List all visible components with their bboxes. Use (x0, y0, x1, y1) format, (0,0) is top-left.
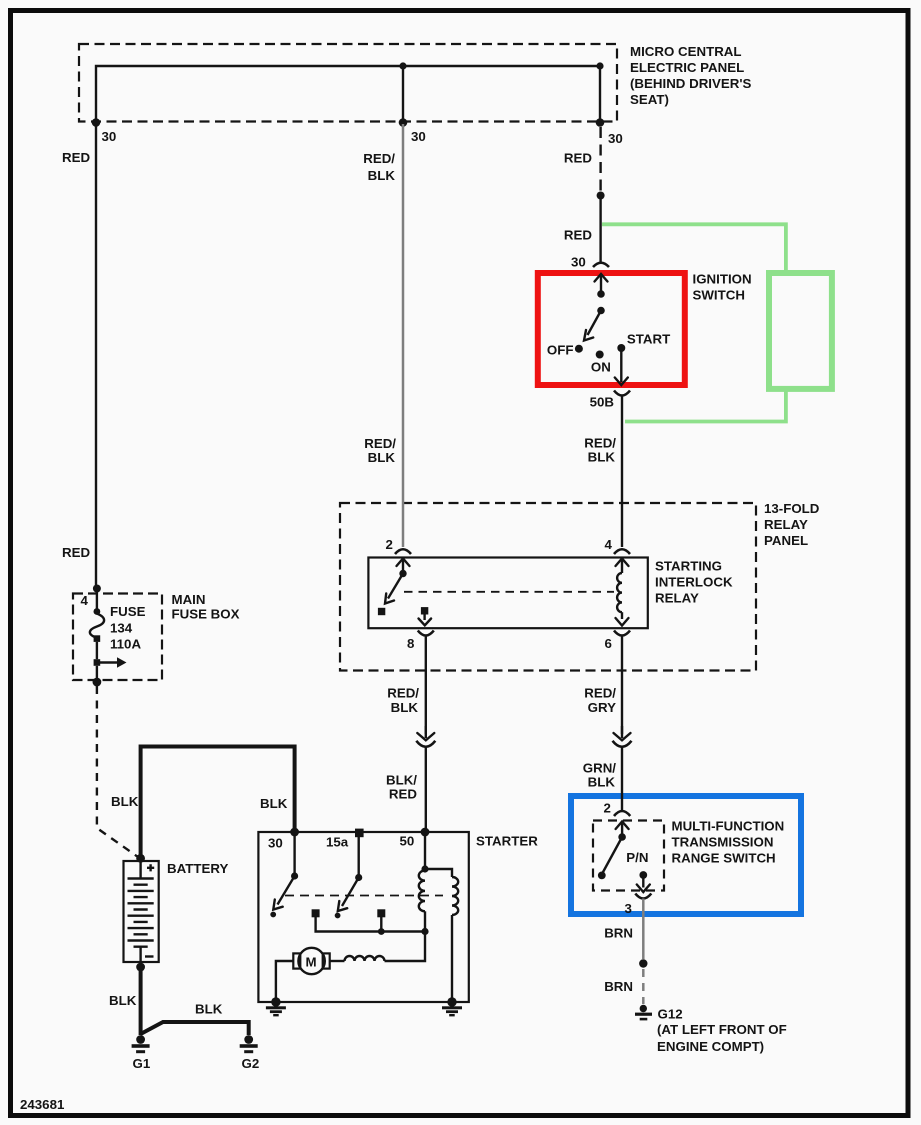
svg-text:FUSE: FUSE (110, 604, 146, 619)
svg-text:BLK: BLK (109, 993, 137, 1008)
svg-text:4: 4 (605, 537, 613, 552)
svg-text:MICRO CENTRAL: MICRO CENTRAL (630, 44, 742, 59)
svg-text:G1: G1 (133, 1056, 151, 1071)
svg-text:3: 3 (625, 901, 632, 916)
svg-text:30: 30 (608, 131, 623, 146)
svg-text:RED/: RED/ (363, 151, 395, 166)
svg-text:BLK: BLK (368, 450, 396, 465)
svg-text:BLK: BLK (368, 168, 396, 183)
svg-text:STARTER: STARTER (476, 834, 538, 849)
svg-text:STARTING: STARTING (655, 559, 722, 574)
svg-text:RELAY: RELAY (655, 591, 699, 606)
svg-text:BLK: BLK (391, 700, 419, 715)
svg-text:30: 30 (102, 129, 117, 144)
svg-text:15a: 15a (326, 835, 349, 850)
svg-text:RED/: RED/ (364, 436, 396, 451)
svg-text:50: 50 (400, 834, 415, 849)
svg-text:243681: 243681 (20, 1097, 65, 1112)
svg-text:RED/: RED/ (387, 686, 419, 701)
svg-text:FUSE BOX: FUSE BOX (172, 607, 240, 622)
svg-text:BLK: BLK (195, 1002, 223, 1017)
svg-text:2: 2 (604, 801, 611, 816)
svg-text:SWITCH: SWITCH (693, 288, 745, 303)
svg-text:134: 134 (110, 621, 133, 636)
svg-text:G12: G12 (658, 1007, 683, 1022)
svg-text:BLK: BLK (588, 450, 616, 465)
svg-text:PANEL: PANEL (764, 533, 808, 548)
svg-text:ENGINE COMPT): ENGINE COMPT) (657, 1039, 764, 1054)
svg-text:RELAY: RELAY (764, 517, 808, 532)
svg-text:13-FOLD: 13-FOLD (764, 501, 820, 516)
svg-text:BLK: BLK (111, 794, 139, 809)
svg-text:OFF: OFF (547, 343, 574, 358)
svg-text:BATTERY: BATTERY (167, 861, 228, 876)
svg-text:TRANSMISSION: TRANSMISSION (672, 835, 774, 850)
svg-text:BRN: BRN (604, 979, 633, 994)
svg-text:30: 30 (268, 836, 283, 851)
svg-text:MAIN: MAIN (172, 592, 206, 607)
svg-text:GRY: GRY (588, 700, 616, 715)
svg-text:RED/: RED/ (584, 436, 616, 451)
svg-text:BLK: BLK (588, 775, 616, 790)
svg-text:BRN: BRN (604, 926, 633, 941)
svg-text:50B: 50B (590, 395, 614, 410)
svg-text:30: 30 (571, 255, 586, 270)
svg-text:M: M (306, 955, 317, 970)
svg-text:30: 30 (411, 129, 426, 144)
svg-text:INTERLOCK: INTERLOCK (655, 575, 733, 590)
svg-text:IGNITION: IGNITION (693, 272, 752, 287)
svg-text:8: 8 (407, 636, 414, 651)
svg-text:P/N: P/N (626, 850, 648, 865)
svg-text:RED: RED (389, 787, 417, 802)
svg-text:ELECTRIC PANEL: ELECTRIC PANEL (630, 60, 744, 75)
svg-text:MULTI-FUNCTION: MULTI-FUNCTION (672, 819, 785, 834)
svg-text:RED: RED (62, 545, 90, 560)
svg-text:2: 2 (386, 537, 393, 552)
svg-text:SEAT): SEAT) (630, 92, 669, 107)
svg-text:G2: G2 (242, 1056, 260, 1071)
svg-text:START: START (627, 332, 670, 347)
svg-text:(AT LEFT FRONT OF: (AT LEFT FRONT OF (657, 1022, 787, 1037)
svg-text:RED/: RED/ (584, 686, 616, 701)
svg-text:6: 6 (605, 636, 612, 651)
svg-text:4: 4 (81, 593, 89, 608)
svg-text:RED: RED (564, 228, 592, 243)
svg-text:ON: ON (591, 360, 611, 375)
svg-text:BLK: BLK (260, 796, 288, 811)
svg-text:RED: RED (62, 150, 90, 165)
svg-text:GRN/: GRN/ (583, 761, 617, 776)
svg-text:BLK/: BLK/ (386, 773, 417, 788)
svg-text:RANGE SWITCH: RANGE SWITCH (672, 851, 776, 866)
svg-text:110A: 110A (110, 637, 141, 652)
svg-text:(BEHIND DRIVER'S: (BEHIND DRIVER'S (630, 76, 751, 91)
svg-text:RED: RED (564, 151, 592, 166)
